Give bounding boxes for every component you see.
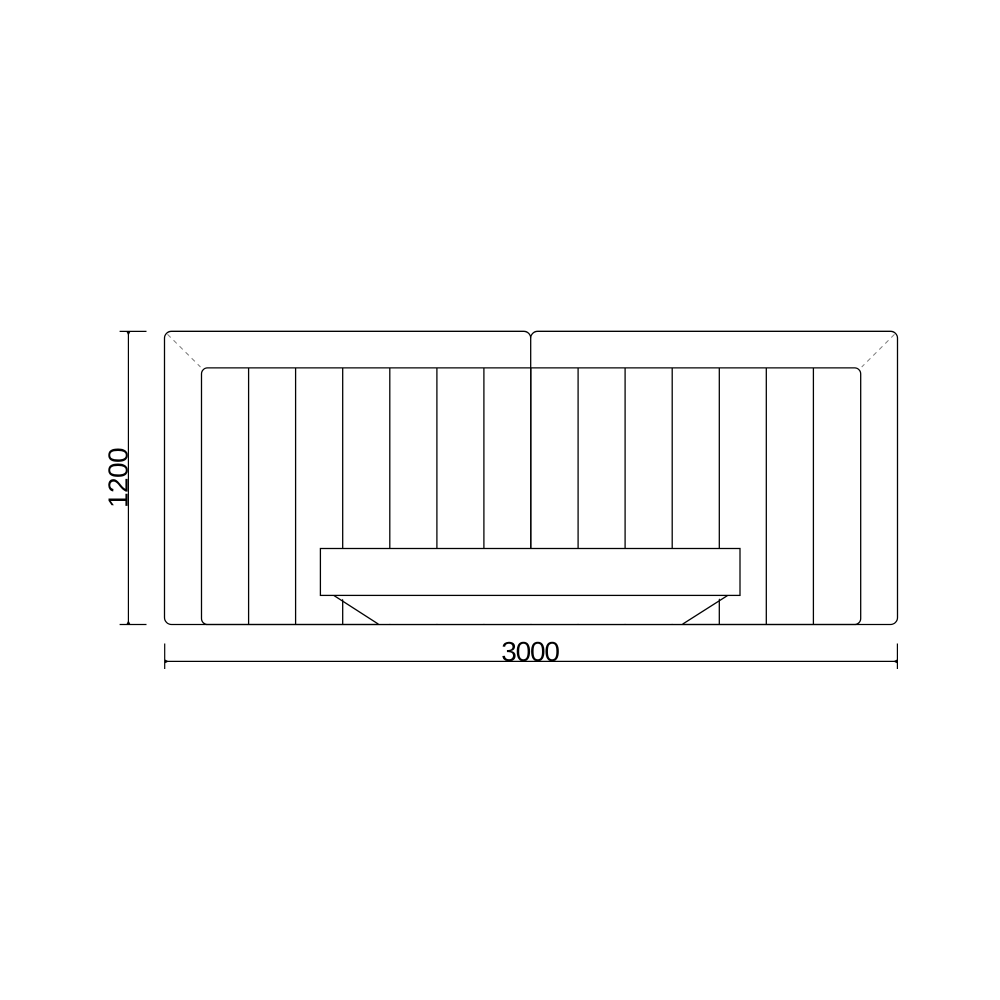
- svg-text:1200: 1200: [103, 448, 134, 508]
- svg-text:3000: 3000: [501, 636, 559, 667]
